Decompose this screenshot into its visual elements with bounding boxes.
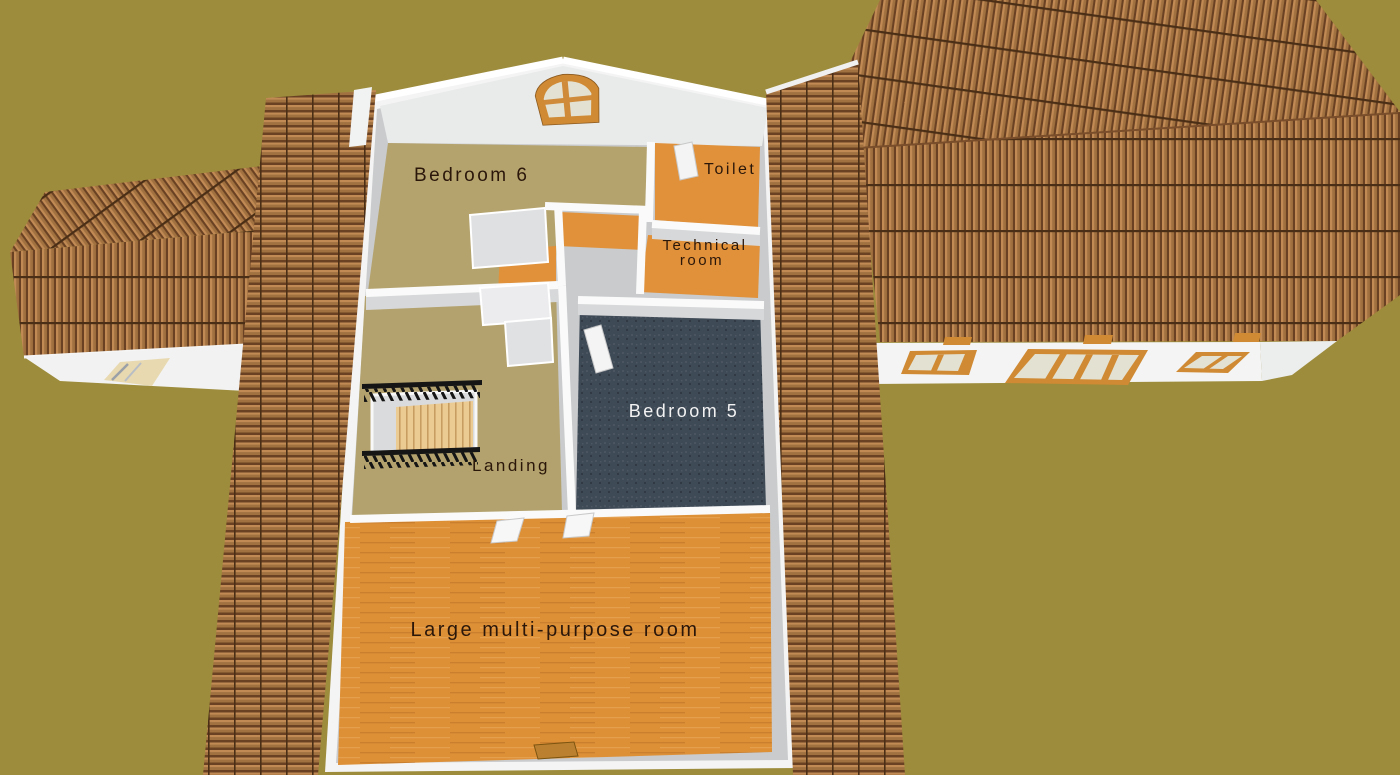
stair-steps	[396, 401, 473, 452]
wall	[558, 204, 562, 286]
eave-vent	[943, 337, 972, 345]
toilet-label: Toilet	[704, 161, 756, 178]
multi-purpose-room-door	[563, 513, 594, 538]
left-wing-roof-front-slope	[10, 230, 264, 357]
3d-view-canvas: Bedroom 6 Toilet Technical room Bedroom …	[0, 0, 1400, 775]
main-building-floorplan: Bedroom 6 Toilet Technical room Bedroom …	[325, 59, 799, 772]
landing-label: Landing	[472, 456, 550, 475]
floor-hatch	[534, 742, 578, 759]
corridor-floor-patch	[558, 212, 645, 250]
wall	[545, 206, 650, 210]
left-wing-building	[10, 166, 264, 392]
toilet-floor	[655, 143, 760, 228]
wall	[640, 210, 643, 294]
right-wall-window-1	[901, 350, 977, 375]
right-building-roof-front-slope	[860, 112, 1400, 342]
multi-purpose-room-label: Large multi-purpose room	[411, 619, 700, 641]
eave-vent	[1233, 333, 1261, 342]
right-wall-window-2	[1005, 349, 1148, 385]
staircase	[362, 380, 482, 469]
technical-room-label-line2: room	[680, 252, 724, 269]
3d-home-view[interactable]: Bedroom 6 Toilet Technical room Bedroom …	[0, 0, 1400, 775]
closet-block	[505, 318, 553, 366]
bedroom-6-label: Bedroom 6	[414, 165, 529, 186]
eave-vent	[1083, 335, 1113, 344]
right-building	[824, 0, 1400, 385]
bedroom-5-label: Bedroom 5	[629, 401, 740, 421]
wall	[578, 300, 764, 305]
corridor-wall-block	[470, 208, 548, 268]
